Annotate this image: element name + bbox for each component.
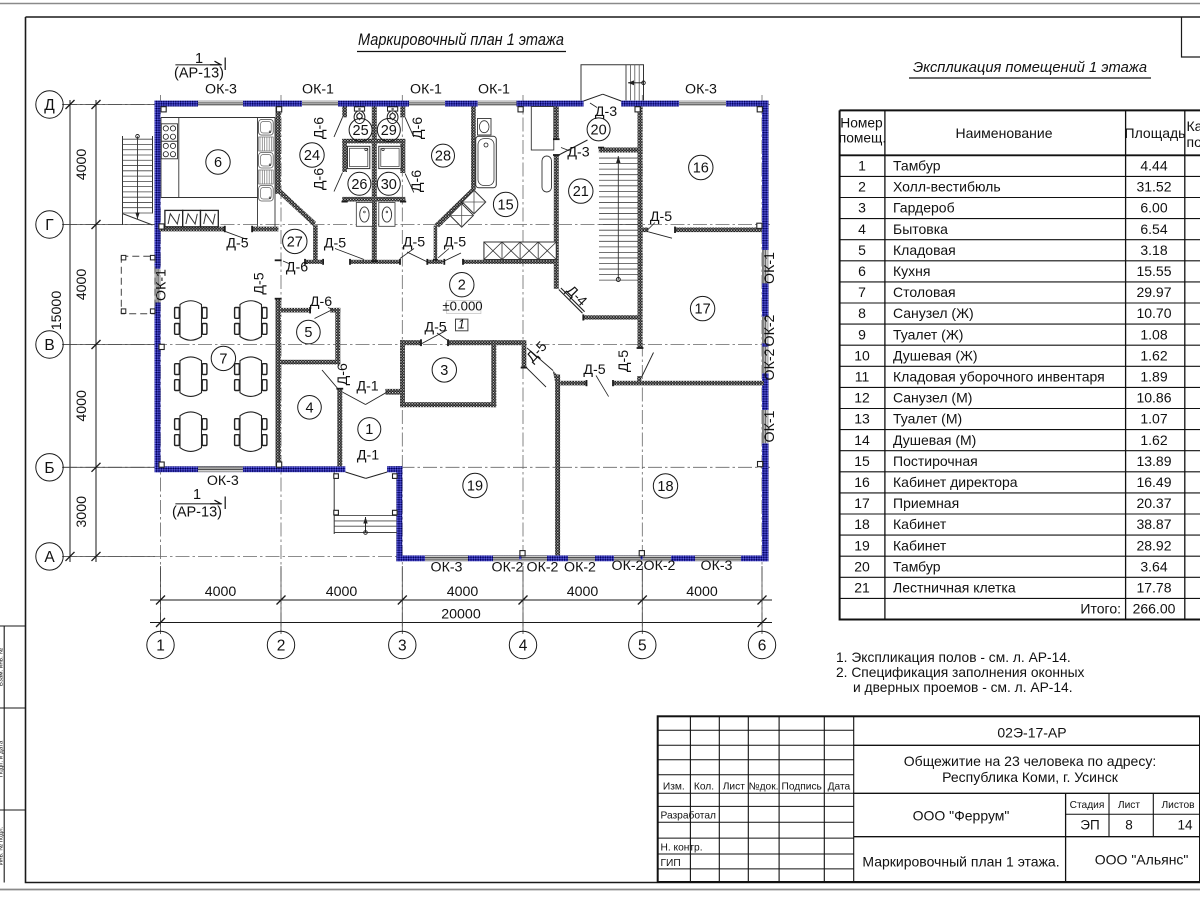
svg-text:Д-5: Д-5 — [324, 236, 346, 252]
svg-text:18: 18 — [854, 516, 870, 532]
svg-text:4: 4 — [858, 221, 866, 237]
svg-text:ОК-2: ОК-2 — [492, 560, 524, 576]
svg-text:ОК-1: ОК-1 — [762, 252, 778, 284]
svg-text:Туалет (Ж): Туалет (Ж) — [893, 326, 963, 342]
svg-text:Д-5: Д-5 — [616, 350, 632, 372]
svg-text:8: 8 — [1125, 818, 1133, 833]
svg-text:ОК-2: ОК-2 — [762, 314, 778, 346]
svg-text:2: 2 — [458, 278, 466, 294]
svg-text:6: 6 — [758, 637, 767, 654]
svg-text:Д-6: Д-6 — [286, 260, 308, 276]
svg-text:1.08: 1.08 — [1140, 326, 1167, 342]
svg-text:Кабинет: Кабинет — [893, 516, 947, 532]
svg-text:ОК-3: ОК-3 — [701, 558, 733, 574]
svg-text:3.64: 3.64 — [1140, 558, 1167, 574]
svg-text:Дата: Дата — [828, 782, 851, 793]
svg-text:Д-6: Д-6 — [409, 170, 425, 192]
svg-text:Наименование: Наименование — [955, 125, 1052, 141]
svg-text:Лист: Лист — [1118, 800, 1140, 811]
svg-text:Санузел (Ж): Санузел (Ж) — [893, 305, 974, 321]
svg-text:266.00: 266.00 — [1133, 601, 1176, 617]
svg-text:Столовая: Столовая — [893, 284, 956, 300]
svg-text:Д: Д — [44, 97, 55, 114]
svg-text:6: 6 — [858, 263, 866, 279]
svg-text:Маркировочный план 1 этажа.: Маркировочный план 1 этажа. — [862, 854, 1059, 870]
svg-text:14: 14 — [1177, 818, 1193, 833]
svg-text:21: 21 — [854, 580, 870, 596]
svg-text:24: 24 — [304, 148, 320, 164]
svg-text:17.78: 17.78 — [1136, 580, 1171, 596]
svg-text:Кухня: Кухня — [893, 263, 930, 279]
svg-text:2. Спецификация заполнения око: 2. Спецификация заполнения оконных — [836, 665, 1085, 680]
svg-text:Туалет (М): Туалет (М) — [893, 411, 962, 427]
svg-text:Общежитие на 23 человека по ад: Общежитие на 23 человека по адресу: — [904, 753, 1156, 769]
svg-text:Кол.: Кол. — [694, 782, 714, 793]
svg-text:Кабинет директора: Кабинет директора — [893, 474, 1018, 490]
svg-text:ОК-2: ОК-2 — [527, 560, 559, 576]
svg-text:38.87: 38.87 — [1136, 516, 1171, 532]
svg-text:13.89: 13.89 — [1136, 453, 1171, 469]
svg-text:15.55: 15.55 — [1136, 263, 1171, 279]
svg-text:(АР-13): (АР-13) — [174, 66, 224, 82]
svg-text:Кладовая уборочного инвентаря: Кладовая уборочного инвентаря — [893, 369, 1105, 385]
svg-text:Кладовая: Кладовая — [893, 242, 956, 258]
svg-text:ОК-1: ОК-1 — [410, 82, 442, 98]
svg-text:5: 5 — [304, 325, 312, 341]
svg-text:Тамбур: Тамбур — [893, 158, 941, 174]
svg-text:4000: 4000 — [326, 584, 358, 600]
svg-text:Д-6: Д-6 — [312, 168, 328, 190]
svg-text:20: 20 — [854, 558, 870, 574]
svg-text:6.00: 6.00 — [1140, 200, 1167, 216]
svg-text:Б: Б — [44, 460, 54, 477]
svg-text:ОК-2: ОК-2 — [564, 560, 596, 576]
svg-text:15: 15 — [498, 197, 514, 213]
svg-text:15000: 15000 — [49, 291, 65, 331]
svg-text:1: 1 — [365, 422, 373, 438]
svg-text:Холл-вестибюль: Холл-вестибюль — [893, 179, 1001, 195]
svg-text:27: 27 — [287, 234, 303, 250]
svg-text:4.44: 4.44 — [1140, 158, 1167, 174]
svg-text:Изм.: Изм. — [663, 782, 685, 793]
svg-text:Лестничная клетка: Лестничная клетка — [893, 580, 1016, 596]
svg-text:8: 8 — [858, 305, 866, 321]
svg-text:Постирочная: Постирочная — [893, 453, 978, 469]
svg-text:Д-5: Д-5 — [403, 235, 425, 251]
svg-text:Инв. № подл.: Инв. № подл. — [0, 826, 5, 865]
svg-text:4000: 4000 — [74, 390, 90, 422]
svg-text:19: 19 — [467, 479, 483, 495]
svg-text:Д-6: Д-6 — [312, 117, 328, 139]
svg-text:Разработал: Разработал — [661, 810, 717, 822]
svg-text:2: 2 — [277, 637, 286, 654]
svg-text:ООО "Феррум": ООО "Феррум" — [913, 808, 1010, 824]
svg-text:Душевая (М): Душевая (М) — [893, 432, 976, 448]
svg-text:11: 11 — [855, 369, 870, 385]
svg-text:25: 25 — [353, 123, 369, 139]
svg-text:1: 1 — [858, 158, 866, 174]
svg-text:ОК-2: ОК-2 — [762, 348, 778, 380]
svg-text:1.07: 1.07 — [1140, 411, 1167, 427]
svg-text:Д-5: Д-5 — [424, 320, 446, 336]
svg-text:17: 17 — [695, 302, 711, 318]
svg-text:26: 26 — [351, 177, 367, 193]
svg-text:1.62: 1.62 — [1140, 432, 1167, 448]
svg-text:4000: 4000 — [74, 149, 90, 181]
svg-text:20: 20 — [591, 122, 607, 138]
svg-text:(АР-13): (АР-13) — [172, 505, 222, 521]
svg-text:Д-5: Д-5 — [583, 362, 605, 378]
svg-text:Тамбур: Тамбур — [893, 558, 941, 574]
svg-text:4: 4 — [519, 637, 528, 654]
svg-text:28: 28 — [435, 149, 451, 165]
svg-text:4000: 4000 — [447, 584, 479, 600]
svg-text:Душевая (Ж): Душевая (Ж) — [893, 347, 978, 363]
svg-text:20000: 20000 — [441, 607, 481, 623]
svg-text:6.54: 6.54 — [1140, 221, 1167, 237]
svg-text:Приемная: Приемная — [893, 495, 959, 511]
svg-text:21: 21 — [573, 184, 589, 200]
svg-text:9: 9 — [858, 326, 866, 342]
svg-text:и дверных проемов - см. л. АР-: и дверных проемов - см. л. АР-14. — [853, 680, 1073, 695]
svg-text:4: 4 — [305, 400, 313, 416]
svg-text:ОК-1: ОК-1 — [478, 82, 510, 98]
svg-text:13: 13 — [854, 411, 870, 427]
svg-text:Д-5: Д-5 — [444, 235, 466, 251]
svg-text:7: 7 — [219, 351, 227, 367]
svg-text:4000: 4000 — [567, 584, 599, 600]
svg-text:20.37: 20.37 — [1136, 495, 1171, 511]
svg-text:Площадь: Площадь — [1125, 125, 1186, 141]
svg-text:4000: 4000 — [686, 584, 718, 600]
svg-text:ОК-3: ОК-3 — [207, 473, 239, 489]
svg-text:Экспликация помещений 1 этажа: Экспликация помещений 1 этажа — [913, 59, 1147, 76]
svg-text:18: 18 — [657, 479, 673, 495]
svg-text:ОК-1: ОК-1 — [762, 410, 778, 442]
svg-text:±0.000: ±0.000 — [442, 299, 482, 314]
svg-text:помещ.: помещ. — [839, 131, 887, 146]
svg-text:3000: 3000 — [74, 496, 90, 528]
svg-text:1.62: 1.62 — [1140, 347, 1167, 363]
svg-text:28.92: 28.92 — [1136, 537, 1171, 553]
svg-text:Д-1: Д-1 — [356, 378, 378, 394]
svg-text:Д-6: Д-6 — [335, 363, 351, 385]
svg-text:Г: Г — [45, 217, 54, 234]
svg-text:ООО "Альянс": ООО "Альянс" — [1095, 852, 1189, 868]
svg-text:Кабинет: Кабинет — [893, 537, 947, 553]
svg-text:1: 1 — [193, 487, 201, 503]
svg-text:Итого:: Итого: — [1080, 601, 1121, 617]
svg-text:ОК-3: ОК-3 — [205, 82, 237, 98]
svg-text:В: В — [44, 337, 54, 354]
svg-text:Бытовка: Бытовка — [893, 221, 948, 237]
svg-text:Н. контр.: Н. контр. — [661, 843, 703, 854]
svg-text:1. Экспликация полов - см. л.: 1. Экспликация полов - см. л. АР-14. — [836, 650, 1071, 665]
svg-text:ОК-2: ОК-2 — [644, 558, 676, 574]
svg-text:Д-5: Д-5 — [650, 209, 672, 225]
svg-text:10: 10 — [854, 347, 870, 363]
svg-text:ЭП: ЭП — [1080, 818, 1099, 833]
svg-text:7: 7 — [858, 284, 866, 300]
svg-text:3: 3 — [398, 637, 407, 654]
svg-text:ОК-3: ОК-3 — [685, 82, 717, 98]
svg-text:3: 3 — [440, 363, 448, 379]
svg-text:16.49: 16.49 — [1136, 474, 1171, 490]
svg-text:Д-6: Д-6 — [410, 117, 426, 139]
svg-text:ОК-1: ОК-1 — [154, 269, 170, 301]
svg-text:Листов: Листов — [1161, 800, 1194, 811]
svg-text:Д-1: Д-1 — [357, 448, 379, 464]
svg-text:3: 3 — [858, 200, 866, 216]
svg-text:10.70: 10.70 — [1136, 305, 1171, 321]
svg-text:19: 19 — [854, 537, 870, 553]
svg-text:ОК-1: ОК-1 — [302, 82, 334, 98]
svg-text:10.86: 10.86 — [1136, 390, 1171, 406]
svg-text:16: 16 — [693, 161, 709, 177]
svg-text:6: 6 — [214, 155, 222, 171]
svg-text:Ка: Ка — [1187, 118, 1200, 134]
svg-text:12: 12 — [854, 390, 870, 406]
svg-text:Подпись: Подпись — [782, 782, 822, 793]
svg-text:Номер: Номер — [840, 116, 883, 131]
svg-text:ОК-2: ОК-2 — [612, 558, 644, 574]
svg-text:по: по — [1187, 134, 1200, 150]
svg-text:5: 5 — [858, 242, 866, 258]
svg-text:Санузел (М): Санузел (М) — [893, 390, 972, 406]
svg-text:А: А — [44, 549, 55, 566]
svg-text:1.89: 1.89 — [1140, 369, 1167, 385]
svg-text:29: 29 — [381, 123, 397, 139]
svg-text:Лист: Лист — [723, 782, 745, 793]
svg-text:02Э-17-АР: 02Э-17-АР — [997, 725, 1066, 741]
svg-text:2: 2 — [858, 179, 866, 195]
svg-text:15: 15 — [854, 453, 870, 469]
svg-text:1: 1 — [156, 637, 165, 654]
svg-text:1: 1 — [458, 318, 465, 332]
svg-text:Д-5: Д-5 — [226, 236, 248, 252]
svg-text:4000: 4000 — [205, 584, 237, 600]
svg-text:14: 14 — [854, 432, 870, 448]
svg-text:ОК-3: ОК-3 — [431, 560, 463, 576]
svg-text:№док.: №док. — [749, 782, 779, 793]
svg-text:Республика Коми, г. Усинск: Республика Коми, г. Усинск — [942, 769, 1119, 785]
svg-text:Д-3: Д-3 — [567, 145, 589, 161]
svg-text:4000: 4000 — [74, 269, 90, 301]
svg-text:5: 5 — [638, 637, 647, 654]
svg-text:16: 16 — [854, 474, 870, 490]
svg-text:ГИП: ГИП — [661, 858, 681, 869]
svg-text:Стадия: Стадия — [1070, 800, 1105, 811]
svg-text:Маркировочный план 1 этажа: Маркировочный план 1 этажа — [358, 30, 564, 49]
svg-text:Взам. инв. №: Взам. инв. № — [0, 647, 5, 686]
svg-text:30: 30 — [381, 177, 397, 193]
svg-text:3.18: 3.18 — [1140, 242, 1167, 258]
svg-text:Д-3: Д-3 — [595, 104, 617, 120]
svg-text:Д-5: Д-5 — [252, 272, 268, 294]
svg-text:29.97: 29.97 — [1136, 284, 1171, 300]
svg-text:17: 17 — [854, 495, 870, 511]
svg-text:Гардероб: Гардероб — [893, 200, 955, 216]
svg-text:Подп. и дата: Подп. и дата — [0, 740, 5, 777]
svg-text:31.52: 31.52 — [1136, 179, 1171, 195]
